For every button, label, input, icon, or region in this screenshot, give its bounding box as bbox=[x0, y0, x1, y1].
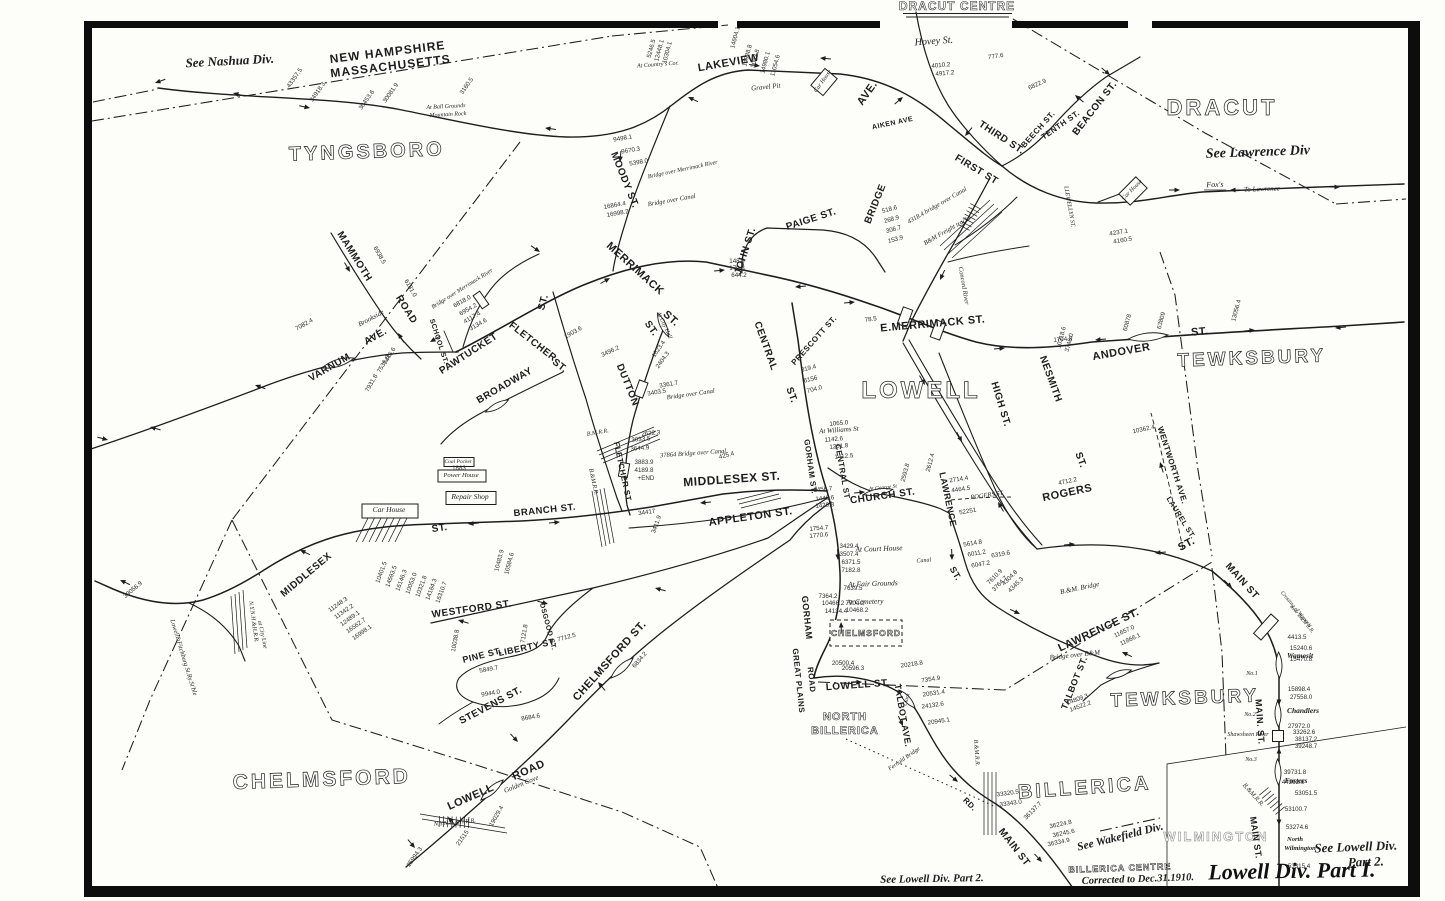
direction-arrow bbox=[820, 56, 831, 62]
map-title-lowell-div-part-i: Lowell Div. Part I. bbox=[1207, 857, 1376, 885]
milepost-number-6938-5: 6938.5 bbox=[372, 245, 388, 265]
note-label-b-m-bridge: B.&M. Bridge bbox=[1059, 580, 1100, 596]
station-label-north: North bbox=[1286, 836, 1303, 843]
map-border bbox=[84, 21, 718, 28]
milepost-number-33320-5: 33320.5 bbox=[996, 788, 1020, 798]
street-label-main-st: MAIN ST bbox=[996, 826, 1032, 868]
milepost-number-1201-8: 1201.8 bbox=[829, 442, 849, 451]
town-label-chelmsford: CHELMSFORD bbox=[232, 765, 411, 794]
note-label-repair-shop: Repair Shop bbox=[450, 492, 489, 501]
street-label-beacon-st: BEACON ST. bbox=[1071, 79, 1120, 137]
street-label-third-st: THIRD ST. bbox=[976, 119, 1026, 157]
milepost-number-6319-6: 6319.6 bbox=[991, 549, 1011, 559]
milepost-number-170-8: 170.8 bbox=[729, 265, 745, 272]
milepost-number-4189-8: 4189.8 bbox=[635, 467, 654, 474]
reference-label-see-lowell-div-part-2: See Lowell Div. Part 2. bbox=[880, 872, 984, 886]
map-page: TYNGSBORODRACUTLOWELLTEWKSBURYTEWKSBURYC… bbox=[0, 0, 1445, 901]
milepost-number-148-9: 148.9 bbox=[729, 258, 745, 265]
milepost-number-24132-6: 24132.6 bbox=[921, 700, 945, 710]
direction-arrow bbox=[1244, 328, 1255, 334]
milepost-number-3403-5: 3403.5 bbox=[647, 387, 667, 397]
milepost-number-6822-9: 6822.9 bbox=[1027, 77, 1048, 92]
street-label-appleton-st: APPLETON ST. bbox=[708, 505, 794, 529]
milepost-number-7354-9: 7354.9 bbox=[921, 675, 941, 685]
street-label-westford-st: WESTFORD ST. bbox=[431, 598, 512, 620]
note-label-car-house: Car House bbox=[373, 505, 406, 514]
milepost-number-60878: 60878 bbox=[1122, 313, 1133, 332]
milepost-number-5849-7: 5849.7 bbox=[479, 664, 499, 674]
note-label-bridge-over-canal: Bridge over Canal bbox=[666, 388, 715, 402]
direction-arrow bbox=[1121, 650, 1133, 659]
milepost-number-7121-8: 7121.8 bbox=[519, 623, 529, 643]
street-label-talbot-ave: TALBOT AVE. bbox=[892, 683, 913, 748]
milepost-number-53100-7: 53100.7 bbox=[1285, 806, 1308, 813]
note-label-gravel-pit: Gravel Pit bbox=[751, 81, 782, 92]
street-label-high-st: HIGH ST. bbox=[988, 381, 1012, 428]
milepost-number-10362-4: 10362.4 bbox=[1132, 424, 1156, 436]
street-label-rogers: ROGERS bbox=[1041, 482, 1093, 504]
direction-arrow bbox=[545, 126, 557, 132]
milepost-number-1456-7: 1456.7 bbox=[813, 485, 833, 494]
milepost-number-7364-2: 7364.2 bbox=[819, 593, 838, 600]
milepost-number-38137-2: 38137.2 bbox=[1295, 736, 1318, 743]
milepost-number-268-9: 268.9 bbox=[883, 214, 900, 225]
direction-arrow bbox=[1169, 188, 1180, 193]
milepost-number-11054-6: 11054.6 bbox=[769, 54, 782, 78]
map-border bbox=[84, 886, 1420, 897]
milepost-number-36334-9: 36334.9 bbox=[1047, 837, 1071, 849]
town-label-tyngsboro: TYNGSBORO bbox=[289, 138, 446, 165]
milepost-number-44262-6: 44262.6 bbox=[1282, 779, 1305, 786]
direction-arrow bbox=[1329, 185, 1340, 190]
street-label-st: ST. bbox=[783, 386, 799, 405]
street-label-middlesex: MIDDLESEX bbox=[279, 551, 334, 600]
street-label-nesmith: NESMITH bbox=[1037, 354, 1064, 403]
map-border bbox=[1408, 21, 1420, 897]
milepost-number-39248-7: 39248.7 bbox=[1295, 743, 1318, 750]
milepost-number-2714-4: 2714.4 bbox=[949, 475, 969, 485]
note-label-at-court-house: At Court House bbox=[854, 543, 903, 554]
street-label-st: ST. bbox=[948, 565, 964, 583]
street-label-gorham: GORHAM bbox=[800, 595, 815, 640]
milepost-number-10584-6: 10584.6 bbox=[503, 551, 516, 575]
direction-arrow bbox=[1009, 607, 1021, 616]
milepost-number-3644-9: 3644.9 bbox=[630, 444, 650, 453]
note-label-bridge-over-canal: Bridge over Canal bbox=[647, 193, 696, 208]
direction-arrow bbox=[97, 435, 109, 442]
milepost-number-6011-2: 6011.2 bbox=[967, 548, 987, 558]
note-label-llewellyn-st: LLEWELLYN ST. bbox=[1062, 185, 1075, 228]
milepost-number-53051-5: 53051.5 bbox=[1295, 790, 1318, 797]
map-border bbox=[1152, 21, 1408, 28]
direction-arrow bbox=[154, 77, 166, 85]
street-label-andover: ANDOVER bbox=[1092, 341, 1152, 363]
milepost-number-777-6: 777.6 bbox=[988, 52, 1005, 61]
milepost-number-33262-6: 33262.6 bbox=[1293, 729, 1316, 736]
direction-arrow bbox=[844, 300, 855, 306]
street-label-ave: AVE. bbox=[855, 79, 880, 108]
note-label-b-m-r-r: B.&M.R.R. bbox=[587, 468, 598, 495]
direction-arrow bbox=[342, 261, 352, 273]
station-label-wilmington: Wilmington bbox=[1284, 845, 1316, 852]
note-label-to-lawrence: To Lawrence bbox=[1244, 184, 1280, 193]
town-label-dracut-centre: DRACUT CENTRE bbox=[899, 0, 1015, 13]
milepost-number-518-6: 518.6 bbox=[881, 204, 898, 215]
note-label-bridge-over-merrimack-river: Bridge over Merrimack River bbox=[647, 160, 718, 181]
railway-map-canvas: TYNGSBORODRACUTLOWELLTEWKSBURYTEWKSBURYC… bbox=[0, 0, 1445, 901]
town-label-dracut: DRACUT bbox=[1167, 95, 1278, 120]
milepost-number-3883-9: 3883.9 bbox=[635, 459, 654, 466]
note-label-bridge-over-b-m: Bridge over B&M bbox=[1049, 648, 1101, 661]
milepost-number-7639-5: 7639.5 bbox=[844, 585, 863, 592]
direction-arrow bbox=[468, 521, 479, 527]
direction-arrow bbox=[549, 520, 560, 526]
milepost-number-34417: 34417 bbox=[638, 508, 657, 517]
street-label-st: ST. bbox=[431, 522, 448, 535]
milepost-number-7704-2: 7704.2 bbox=[846, 600, 865, 607]
milepost-number-39731-8: 39731.8 bbox=[1284, 769, 1307, 776]
direction-arrow bbox=[509, 732, 520, 743]
direction-arrow bbox=[654, 586, 666, 593]
street-label-road: ROAD bbox=[806, 667, 818, 693]
street-label-lowell-st: LOWELL ST. bbox=[825, 678, 890, 693]
milepost-number-9670-3: 9670.3 bbox=[621, 145, 641, 155]
milepost-number-1770-6: 1770.6 bbox=[809, 531, 829, 540]
station-label-chandlers: Chandlers bbox=[1287, 706, 1319, 715]
street-label-dutton: DUTTON bbox=[614, 362, 641, 407]
direction-arrow bbox=[700, 500, 711, 506]
street-label-ave: AVE. bbox=[362, 326, 389, 348]
direction-arrow bbox=[1230, 188, 1241, 193]
reference-label-corrected-to-dec-31-1910: Corrected to Dec.31.1910. bbox=[1082, 872, 1195, 887]
milepost-number-3507-4: 3507.4 bbox=[840, 551, 859, 558]
town-label-billerica: BILLERICA bbox=[1017, 772, 1152, 803]
milepost-number-9498-1: 9498.1 bbox=[613, 133, 633, 143]
milepost-number-78-5: 78.5 bbox=[864, 315, 877, 324]
milepost-number-1412-5: 1412.5 bbox=[834, 452, 854, 461]
milepost-number-5614-8: 5614.8 bbox=[963, 538, 983, 548]
milepost-number-153-9: 153.9 bbox=[887, 234, 904, 245]
reference-label-see-lowell-div: See Lowell Div. bbox=[1314, 838, 1397, 856]
milepost-number-4160-5: 4160.5 bbox=[1113, 235, 1133, 245]
note-label-b-m-r-r: B.&M.R.R. bbox=[972, 739, 980, 766]
milepost-number-6834-2: 6834.2 bbox=[631, 650, 649, 669]
milepost-number-15898-4: 15898.4 bbox=[1288, 686, 1311, 693]
note-label-canal: Canal bbox=[916, 557, 931, 564]
milepost-number-20945-1: 20945.1 bbox=[927, 716, 951, 726]
reference-label-see-lawrence-div: See Lawrence Div bbox=[1206, 143, 1311, 162]
milepost-number-33343-0: 33343.0 bbox=[999, 798, 1023, 808]
milepost-number-10038-8: 10038.8 bbox=[450, 629, 461, 653]
milepost-number-36137-7: 36137.7 bbox=[1023, 800, 1044, 821]
note-label-no-3: No.3 bbox=[1244, 757, 1257, 763]
town-label-chelmsford: CHELMSFORD bbox=[831, 628, 901, 638]
milepost-number-13056-4: 13056.4 bbox=[1230, 298, 1243, 322]
milepost-number-2612-4: 2612.4 bbox=[925, 452, 937, 473]
direction-arrow bbox=[299, 103, 311, 110]
milepost-number-7931-8: 7931.8 bbox=[364, 373, 380, 393]
town-label-tewksbury: TEWKSBURY bbox=[1177, 345, 1326, 371]
direction-arrow bbox=[893, 95, 905, 106]
street-label-main-st: MAIN ST bbox=[1223, 561, 1261, 602]
map-border bbox=[737, 21, 880, 28]
milepost-number-4464-5: 4464.5 bbox=[951, 485, 971, 495]
milepost-number-52251: 52251 bbox=[959, 506, 978, 516]
milepost-number-1883: 1883 bbox=[452, 465, 466, 472]
note-label-no-1: No.1 bbox=[1245, 671, 1258, 677]
street-label-middlesex-st: MIDDLESEX ST. bbox=[683, 469, 781, 490]
street-label-st: ST. bbox=[642, 319, 660, 338]
milepost-number-14604-1: 14604.1 bbox=[729, 25, 742, 49]
direction-arrow bbox=[687, 95, 699, 104]
milepost-number-20218-8: 20218.8 bbox=[900, 659, 924, 669]
note-label-shawsheen-river: Shawsheen River bbox=[1227, 732, 1269, 738]
town-label-billerica: BILLERICA bbox=[811, 725, 879, 737]
milepost-number-6047-2: 6047.2 bbox=[971, 559, 991, 569]
street-label-rd: RD. bbox=[961, 796, 978, 813]
milepost-number-3496-2: 3496.2 bbox=[600, 344, 621, 359]
direction-arrow bbox=[457, 618, 469, 626]
note-label-over-b-m-r-r: over B&M R.R. bbox=[1288, 604, 1315, 634]
note-label-lowell-fitchburg-st-ry-st-ble: Lowell&Fitchburg St.Ry.St'ble bbox=[168, 618, 198, 697]
direction-arrow bbox=[714, 268, 725, 274]
milepost-number-4010-2: 4010.2 bbox=[931, 61, 951, 70]
street-label-st: ST. bbox=[1072, 451, 1088, 470]
milepost-number-10468-2: 10468.2 bbox=[846, 607, 869, 614]
milepost-number-4413-5: 4413.5 bbox=[1288, 634, 1307, 641]
milepost-number-30453-6: 30453.6 bbox=[357, 89, 376, 112]
milepost-number-53315-4: 53315.4 bbox=[1288, 863, 1311, 870]
milepost-number-1903-6: 1903.6 bbox=[563, 325, 583, 341]
milepost-number-3411-9: 3411.9 bbox=[650, 514, 663, 534]
direction-arrow bbox=[1033, 852, 1044, 863]
milepost-number-20596-3: 20596.3 bbox=[842, 665, 865, 672]
note-label-power-house: Power House bbox=[442, 472, 478, 479]
direction-arrow bbox=[119, 578, 131, 587]
milepost-number-704-0: 704.0 bbox=[806, 384, 823, 395]
milepost-number-6371-5: 6371.5 bbox=[842, 559, 861, 566]
milepost-number-3033-5: 3033.5 bbox=[631, 435, 651, 444]
reference-label-see-wakefield-div: See Wakefield Div. bbox=[1076, 821, 1165, 854]
street-label-great-plains: GREAT PLAINS bbox=[791, 648, 807, 714]
milepost-number-7082-4: 7082.4 bbox=[294, 317, 314, 333]
milepost-number-27558-0: 27558.0 bbox=[1290, 694, 1313, 701]
milepost-number-7182-8: 7182.8 bbox=[842, 567, 861, 574]
street-label-prescott-st: PRESCOTT ST. bbox=[790, 314, 839, 367]
street-label-branch-st: BRANCH ST. bbox=[513, 502, 576, 519]
map-border bbox=[84, 21, 92, 897]
note-label-fox-s: Fox's bbox=[1205, 180, 1224, 190]
direction-arrow bbox=[949, 549, 954, 560]
street-label-mammoth: MAMMOTH bbox=[334, 230, 373, 284]
note-label-brookside: Brookside bbox=[357, 308, 386, 328]
milepost-number-10466-2: 10466.2 bbox=[822, 600, 845, 607]
milepost-number-14134-4: 14134.4 bbox=[825, 608, 848, 615]
note-label-b-m-r-r: B.M.R.R. bbox=[586, 428, 609, 438]
town-label-tewksbury: TEWKSBURY bbox=[1110, 685, 1259, 711]
milepost-number-7536-8: 7536.8 bbox=[376, 354, 392, 374]
milepost-number-3160-5: 3160.5 bbox=[458, 76, 475, 96]
direction-arrow bbox=[1277, 814, 1282, 825]
street-label-paige-st: PAIGE ST. bbox=[785, 206, 838, 233]
street-label-st: ST. bbox=[1191, 325, 1209, 338]
milepost-number-end: +END bbox=[638, 475, 655, 482]
map-border bbox=[1012, 21, 1128, 28]
milepost-number-15240-6: 15240.6 bbox=[1290, 645, 1313, 652]
street-label-varnum: VARNUM bbox=[307, 352, 352, 385]
milepost-number-20531-4: 20531.4 bbox=[922, 688, 946, 698]
milepost-number-15470-8: 15470.8 bbox=[1290, 656, 1313, 663]
note-label-hovey-st: Hovey St. bbox=[913, 35, 953, 49]
direction-arrow bbox=[1064, 542, 1075, 548]
milepost-number-3429-4: 3429.4 bbox=[840, 543, 859, 550]
direction-arrow bbox=[530, 244, 542, 254]
note-label-concord-river: Concord River bbox=[957, 266, 971, 305]
street-label-aiken-ave: AIKEN AVE bbox=[871, 116, 913, 132]
milepost-number-8684-6: 8684.6 bbox=[521, 712, 541, 722]
town-label-north: NORTH bbox=[823, 711, 867, 723]
milepost-number-4917-2: 4917.2 bbox=[935, 69, 955, 78]
direction-arrow bbox=[406, 838, 417, 850]
milepost-number-63809: 63809 bbox=[1156, 311, 1167, 330]
milepost-number-2593-8: 2593.8 bbox=[900, 462, 912, 483]
reference-label-see-nashua-div: See Nashua Div. bbox=[185, 51, 274, 71]
milepost-number-306-7: 306.7 bbox=[885, 224, 902, 235]
direction-arrow bbox=[938, 269, 947, 281]
milepost-number-21515: 21515 bbox=[455, 829, 471, 848]
milepost-number-43357-5: 43357.5 bbox=[285, 67, 304, 90]
note-label-mountain-rock: Mountain Rock bbox=[428, 111, 466, 119]
milepost-number-53274-6: 53274.6 bbox=[1286, 824, 1309, 831]
town-label-lowell: LOWELL bbox=[861, 377, 980, 404]
milepost-number-19029-4: 19029.4 bbox=[488, 804, 506, 827]
milepost-number-644-2: 644.2 bbox=[731, 272, 747, 279]
street-label-fletcher: FLETCHER bbox=[507, 320, 559, 364]
note-label-no-2: No.2 bbox=[1243, 712, 1256, 718]
note-label-b-m-r-r: B.&M.R.R. bbox=[1241, 782, 1266, 808]
street-label-road: ROAD bbox=[393, 293, 419, 326]
milepost-number-30081-9: 30081.9 bbox=[381, 82, 400, 105]
street-label-central: CENTRAL bbox=[751, 320, 779, 372]
milepost-number-7712-5: 7712.5 bbox=[557, 632, 578, 644]
milepost-number-6156: 6156 bbox=[803, 374, 819, 384]
direction-arrow bbox=[1277, 748, 1282, 759]
street-label-st: ST. bbox=[536, 293, 551, 311]
milepost-number-25994-3: 25994.3 bbox=[405, 846, 424, 869]
milepost-number-319-4: 319.4 bbox=[800, 363, 817, 374]
note-label-at-ball-grounds: At Ball Grounds bbox=[425, 103, 466, 111]
